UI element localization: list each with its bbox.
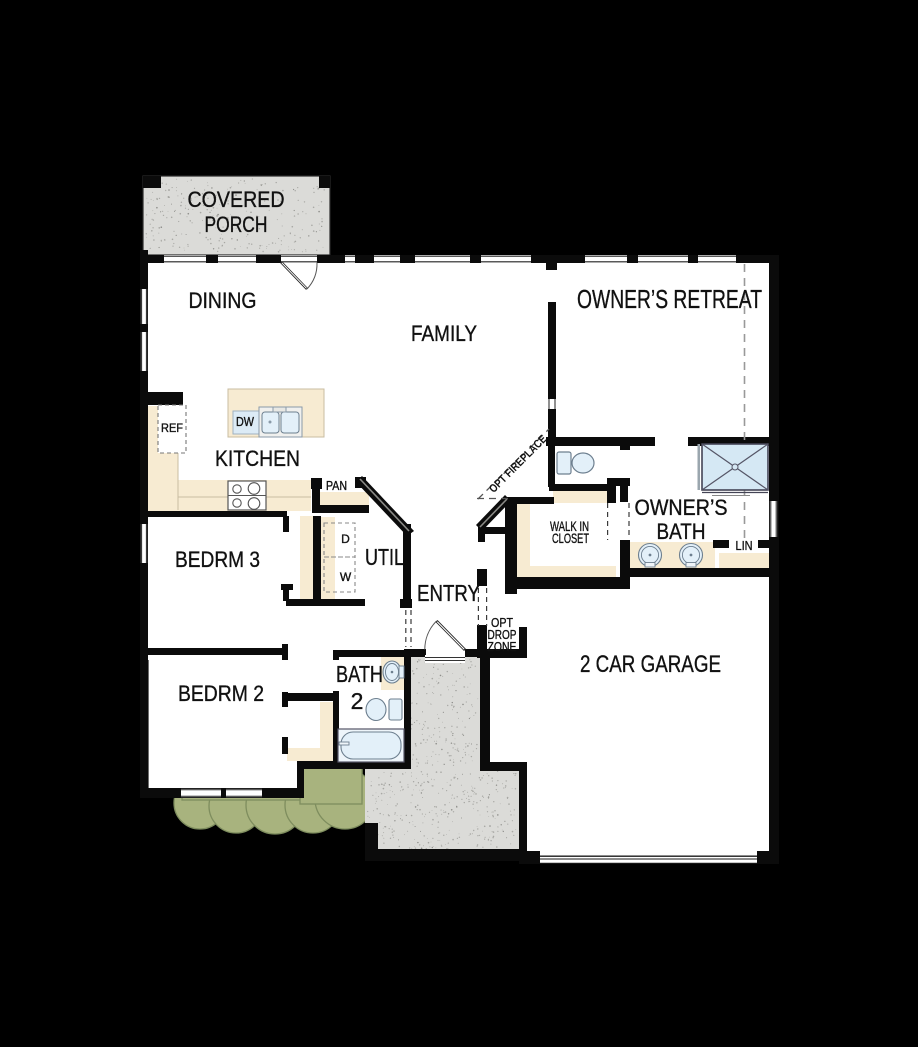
svg-text:REF: REF bbox=[161, 421, 183, 435]
svg-text:BATH: BATH bbox=[657, 519, 706, 544]
svg-text:DW: DW bbox=[236, 415, 254, 429]
svg-text:PORCH: PORCH bbox=[205, 212, 268, 237]
svg-text:LIN: LIN bbox=[736, 539, 753, 553]
svg-text:PAN: PAN bbox=[326, 479, 347, 493]
svg-text:CLOSET: CLOSET bbox=[552, 530, 589, 546]
svg-text:2 CAR GARAGE: 2 CAR GARAGE bbox=[580, 651, 721, 678]
svg-text:ENTRY: ENTRY bbox=[417, 580, 480, 606]
svg-text:ZONE: ZONE bbox=[488, 639, 517, 654]
svg-text:2: 2 bbox=[351, 688, 364, 714]
svg-text:FAMILY: FAMILY bbox=[411, 321, 477, 346]
svg-text:BEDRM 3: BEDRM 3 bbox=[175, 547, 260, 572]
svg-text:UTIL: UTIL bbox=[365, 544, 404, 570]
svg-text:W: W bbox=[340, 570, 352, 584]
svg-text:COVERED: COVERED bbox=[188, 187, 285, 212]
svg-text:OWNER’S: OWNER’S bbox=[635, 495, 728, 520]
svg-text:BATH: BATH bbox=[336, 661, 383, 687]
svg-text:D: D bbox=[341, 532, 350, 546]
svg-text:KITCHEN: KITCHEN bbox=[215, 446, 300, 471]
svg-text:BEDRM 2: BEDRM 2 bbox=[178, 681, 264, 706]
svg-text:DINING: DINING bbox=[189, 288, 257, 313]
svg-text:OWNER’S RETREAT: OWNER’S RETREAT bbox=[577, 284, 762, 314]
